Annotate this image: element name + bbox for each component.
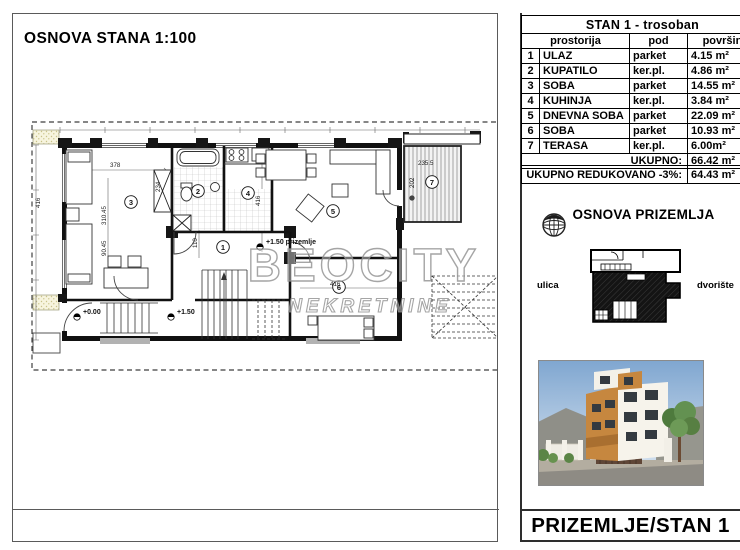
sheet-footer: PRIZEMLJE/STAN 1	[520, 509, 740, 542]
elevation-label-upper: +1.50	[177, 309, 195, 316]
svg-text:3: 3	[129, 198, 133, 207]
reduced-row: UKUPNO REDUKOVANO -3%: 64.43 m²	[522, 166, 740, 184]
svg-text:202: 202	[409, 177, 416, 188]
table-row: 5DNEVNA SOBAparket22.09 m²	[522, 109, 740, 124]
svg-text:378: 378	[110, 162, 121, 169]
svg-text:110: 110	[192, 238, 199, 248]
room-number-1: 1	[217, 241, 230, 254]
floor-plan-drawing: 1 2 3 4 5 6 7 +0.00 +1.50 +1.50 prizemlj…	[13, 50, 497, 508]
svg-text:90.45: 90.45	[101, 240, 108, 256]
table-row: 1ULAZparket4.15 m²	[522, 49, 740, 64]
col-header-floor: pod	[630, 34, 688, 49]
table-row: 4KUHINJAker.pl.3.84 m²	[522, 94, 740, 109]
room-number-4: 4	[242, 187, 255, 200]
svg-text:234: 234	[155, 181, 162, 192]
svg-text:5: 5	[331, 207, 335, 216]
svg-text:235.5: 235.5	[418, 160, 434, 167]
site-plan-thumbnail	[583, 246, 687, 328]
watermark: BEOCITY NEKRETNINE	[248, 239, 480, 317]
room-number-3: 3	[125, 196, 138, 209]
svg-text:416: 416	[255, 195, 262, 206]
reduced-value: 64.43 m²	[688, 166, 740, 184]
table-row: 7TERASAker.pl.6.00m²	[522, 139, 740, 154]
svg-text:7: 7	[430, 178, 434, 187]
room-number-5: 5	[327, 205, 340, 218]
room-number-7: 7	[426, 176, 439, 189]
site-plan-title: OSNOVA PRIZEMLJA	[556, 207, 731, 222]
svg-text:2: 2	[196, 187, 200, 196]
reduced-label: UKUPNO REDUKOVANO -3%:	[522, 166, 688, 184]
table-row: 2KUPATILOker.pl.4.86 m²	[522, 64, 740, 79]
building-render-photo	[538, 360, 704, 486]
table-title: STAN 1 - trosoban	[522, 16, 740, 34]
watermark-nekretnine: NEKRETNINE	[288, 296, 452, 317]
watermark-beocity: BEOCITY	[248, 239, 480, 291]
svg-text:1: 1	[221, 243, 225, 252]
area-table: STAN 1 - trosoban prostorija pod površin…	[521, 15, 740, 169]
table-row: 6SOBAparket10.93 m²	[522, 124, 740, 139]
yard-label: dvorište	[697, 280, 734, 291]
reduced-area-table: UKUPNO REDUKOVANO -3%: 64.43 m²	[521, 165, 740, 184]
street-label: ulica	[537, 280, 559, 291]
title-block-divider	[12, 509, 499, 510]
svg-text:416: 416	[35, 197, 42, 208]
table-header-row: prostorija pod površina	[522, 34, 740, 49]
table-row: 3SOBAparket14.55 m²	[522, 79, 740, 94]
svg-text:310.45: 310.45	[101, 206, 108, 225]
room-number-2: 2	[192, 185, 205, 198]
elevation-label-ground: +0.00	[83, 309, 101, 316]
floor-plan-title: OSNOVA STANA 1:100	[24, 30, 197, 48]
col-header-area: površina	[688, 34, 740, 49]
col-header-room: prostorija	[522, 34, 630, 49]
sheet-footer-label: PRIZEMLJE/STAN 1	[531, 514, 730, 538]
